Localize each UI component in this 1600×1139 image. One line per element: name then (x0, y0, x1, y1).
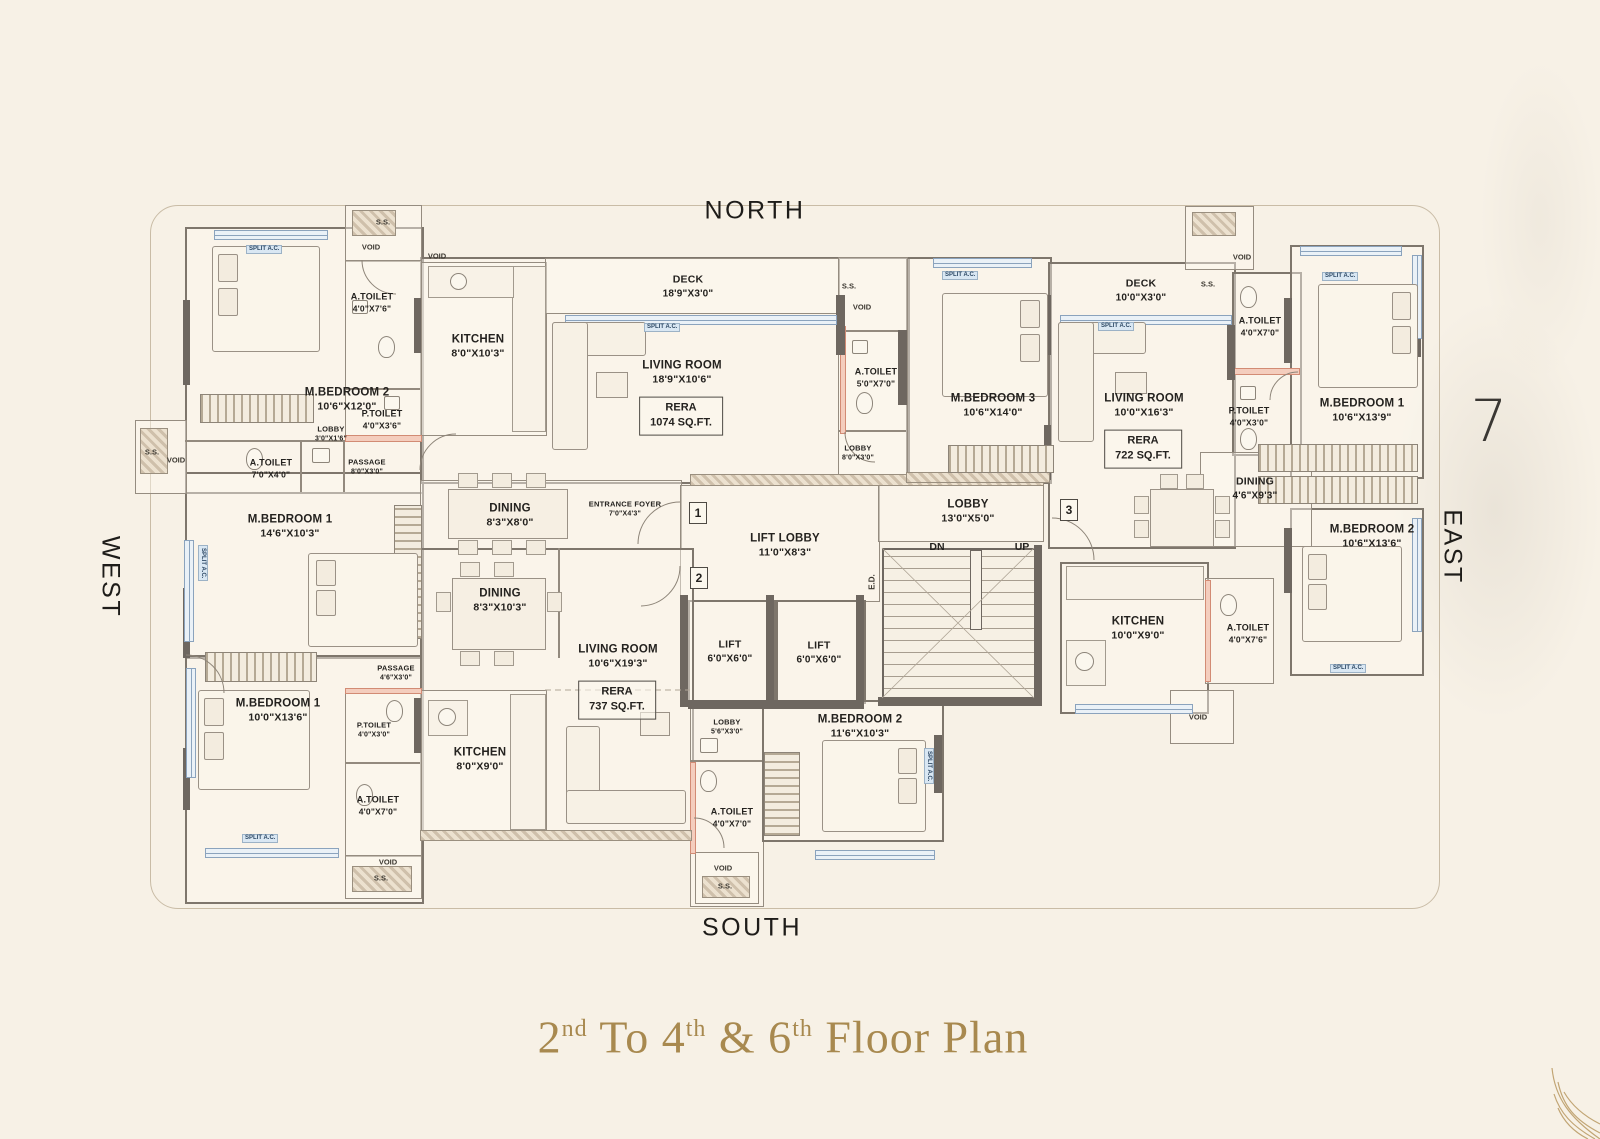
title-text: Floor Plan (813, 1012, 1028, 1063)
room-dims: 10'6"X13'6" (1330, 538, 1415, 552)
room-name: LOBBY (317, 425, 344, 434)
unit-number-badge: 1 (689, 502, 707, 524)
room-label: ENTRANCE FOYER7'0"X4'3" (589, 500, 661, 519)
floor-plan-canvas: M.BEDROOM 210'6"X12'0" A.TOILET4'0"X7'6"… (0, 0, 1600, 1139)
door-swing-arcs (0, 0, 1600, 1139)
room-dims: 4'0"X3'0" (357, 730, 391, 739)
room-name: LOBBY (844, 444, 871, 453)
room-name: DECK (1126, 278, 1157, 290)
room-label: M.BEDROOM 110'6"X13'9" (1320, 397, 1405, 426)
room-dims: 6'0"X6'0" (708, 652, 753, 665)
room-label: M.BEDROOM 114'6"X10'3" (248, 513, 333, 542)
room-dims: 10'0"X9'0" (1111, 630, 1164, 644)
room-label: DECK10'0"X3'0" (1116, 278, 1167, 305)
void-label: VOID (428, 252, 446, 261)
rera-label: RERA (1127, 435, 1158, 447)
room-dims: 18'9"X3'0" (663, 287, 714, 300)
room-label: A.TOILET4'0"X7'0" (1239, 316, 1281, 339)
room-dims: 4'0"X7'0" (1239, 327, 1281, 338)
void-label: VOID (379, 858, 397, 867)
room-name: A.TOILET (1239, 316, 1281, 326)
room-dims: 4'0"X3'0" (1229, 417, 1270, 428)
room-name: A.TOILET (250, 458, 292, 468)
electrical-duct-label: E.D. (868, 574, 877, 590)
title-text: To 4 (588, 1012, 686, 1063)
room-label: LOBBY8'0"X3'0" (842, 444, 874, 463)
void-label: VOID (853, 303, 871, 312)
room-dims: 10'0"X16'3" (1104, 407, 1184, 421)
room-name: P.TOILET (362, 409, 403, 419)
room-label: DINING8'3"X8'0" (486, 502, 533, 531)
floor-number: 7 (1471, 387, 1508, 455)
rera-label: RERA (601, 686, 632, 698)
room-label: LIVING ROOM18'9"X10'6" (642, 359, 722, 388)
room-name: LOBBY (947, 499, 988, 511)
room-name: ENTRANCE FOYER (589, 500, 661, 509)
room-dims: 7'0"X4'0" (250, 469, 292, 480)
room-name: A.TOILET (711, 807, 753, 817)
room-name: LIFT LOBBY (750, 533, 820, 545)
room-name: A.TOILET (1227, 623, 1269, 633)
room-dims: 7'0"X4'3" (589, 509, 661, 518)
room-name: LIFT (808, 640, 831, 652)
room-label: PASSAGE8'0"X3'0" (348, 458, 386, 477)
room-dims: 5'0"X7'0" (855, 378, 897, 389)
room-label: M.BEDROOM 211'6"X10'3" (818, 713, 903, 742)
room-label: P.TOILET4'0"X3'0" (1229, 406, 1270, 429)
split-ac-tag: SPLIT A.C. (1098, 322, 1134, 331)
room-name: A.TOILET (351, 292, 393, 302)
split-ac-tag: SPLIT A.C. (246, 245, 282, 254)
room-label: A.TOILET4'0"X7'0" (711, 807, 753, 830)
room-dims: 8'3"X8'0" (486, 517, 533, 531)
room-name: M.BEDROOM 2 (1330, 524, 1415, 536)
room-label: LOBBY13'0"X5'0" (941, 498, 994, 527)
floor-plan-page: { "compass":{"north":"NORTH","south":"SO… (0, 0, 1600, 1139)
rera-area-box: RERA737 SQ.FT. (578, 681, 656, 720)
stairs-dn-label: DN (929, 541, 944, 553)
room-name: DECK (673, 274, 704, 286)
rera-area-box: RERA722 SQ.FT. (1104, 430, 1182, 469)
room-dims: 8'3"X10'3" (473, 602, 526, 616)
room-label: M.BEDROOM 210'6"X13'6" (1330, 523, 1415, 552)
room-dims: 3'0"X1'6" (315, 434, 347, 443)
title-text: 2 (538, 1012, 562, 1063)
room-name: M.BEDROOM 3 (951, 393, 1036, 405)
room-label: P.TOILET4'0"X3'0" (357, 721, 391, 740)
room-dims: 10'0"X13'6" (236, 712, 321, 726)
room-name: DINING (479, 588, 520, 600)
room-name: M.BEDROOM 2 (818, 714, 903, 726)
room-dims: 4'6"X9'3" (1233, 489, 1278, 502)
room-name: A.TOILET (357, 795, 399, 805)
rera-label: RERA (665, 402, 696, 414)
rera-area-box: RERA1074 SQ.FT. (639, 397, 723, 436)
room-dims: 4'6"X3'0" (377, 673, 415, 682)
room-dims: 10'6"X13'9" (1320, 412, 1405, 426)
room-dims: 4'0"X7'0" (357, 806, 399, 817)
title-text: & 6 (706, 1012, 792, 1063)
rera-value: 722 SQ.FT. (1115, 450, 1171, 462)
unit-number-badge: 2 (690, 567, 708, 589)
room-name: P.TOILET (1229, 406, 1270, 416)
room-label: LIFT6'0"X6'0" (797, 640, 842, 667)
compass-north-label: NORTH (705, 197, 806, 226)
shaft-label: S.S. (374, 874, 388, 883)
page-title: 2nd To 4th & 6th Floor Plan (538, 1011, 1029, 1064)
title-sup: th (686, 1016, 707, 1042)
room-dims: 4'0"X7'0" (711, 818, 753, 829)
room-dims: 13'0"X5'0" (941, 513, 994, 527)
room-dims: 4'0"X7'6" (1227, 634, 1269, 645)
room-label: P.TOILET4'0"X3'6" (362, 409, 403, 432)
room-label: M.BEDROOM 310'6"X14'0" (951, 392, 1036, 421)
split-ac-tag: SPLIT A.C. (924, 748, 934, 784)
room-dims: 8'0"X3'0" (842, 453, 874, 462)
room-name: LOBBY (713, 718, 740, 727)
room-name: A.TOILET (855, 367, 897, 377)
room-name: KITCHEN (1112, 616, 1165, 628)
room-label: LIVING ROOM10'6"X19'3" (578, 643, 658, 672)
room-dims: 10'6"X19'3" (578, 658, 658, 672)
room-label: LIVING ROOM10'0"X16'3" (1104, 392, 1184, 421)
room-name: P.TOILET (357, 721, 391, 730)
room-name: PASSAGE (348, 458, 386, 467)
split-ac-tag: SPLIT A.C. (942, 271, 978, 280)
split-ac-tag: SPLIT A.C. (1330, 664, 1366, 673)
room-name: LIVING ROOM (1104, 393, 1184, 405)
room-label: LIFT LOBBY11'0"X8'3" (750, 532, 820, 561)
title-sup: nd (562, 1016, 588, 1042)
room-label: LIFT6'0"X6'0" (708, 639, 753, 666)
room-dims: 8'0"X10'3" (451, 348, 504, 362)
room-name: LIVING ROOM (642, 360, 722, 372)
split-ac-tag: SPLIT A.C. (198, 545, 208, 581)
room-name: LIVING ROOM (578, 644, 658, 656)
room-label: A.TOILET5'0"X7'0" (855, 367, 897, 390)
split-ac-tag: SPLIT A.C. (242, 834, 278, 843)
shaft-label: S.S. (145, 448, 159, 457)
room-dims: 4'0"X3'6" (362, 420, 403, 431)
room-dims: 11'6"X10'3" (818, 728, 903, 742)
room-dims: 4'0"X7'6" (351, 303, 393, 314)
room-label: DINING8'3"X10'3" (473, 587, 526, 616)
room-label: KITCHEN8'0"X10'3" (451, 333, 504, 362)
room-dims: 11'0"X8'3" (750, 547, 820, 561)
split-ac-tag: SPLIT A.C. (644, 323, 680, 332)
room-name: M.BEDROOM 1 (248, 514, 333, 526)
room-name: DINING (489, 503, 530, 515)
room-name: LIFT (719, 639, 742, 651)
room-dims: 14'6"X10'3" (248, 528, 333, 542)
room-name: M.BEDROOM 1 (1320, 398, 1405, 410)
room-dims: 5'6"X3'0" (711, 727, 743, 736)
room-name: M.BEDROOM 1 (236, 698, 321, 710)
room-label: PASSAGE4'6"X3'0" (377, 664, 415, 683)
room-label: A.TOILET4'0"X7'6" (1227, 623, 1269, 646)
compass-south-label: SOUTH (702, 914, 802, 943)
room-name: KITCHEN (452, 334, 505, 346)
room-dims: 8'0"X9'0" (454, 761, 507, 775)
rera-value: 1074 SQ.FT. (650, 417, 712, 429)
void-label: VOID (714, 864, 732, 873)
compass-west-label: WEST (96, 536, 125, 618)
room-label: DECK18'9"X3'0" (663, 274, 714, 301)
room-name: DINING (1236, 476, 1274, 488)
room-dims: 10'6"X14'0" (951, 407, 1036, 421)
room-label: KITCHEN8'0"X9'0" (454, 746, 507, 775)
shaft-label: S.S. (1201, 280, 1215, 289)
rera-value: 737 SQ.FT. (589, 701, 645, 713)
shaft-label: S.S. (376, 218, 390, 227)
room-label: DINING4'6"X9'3" (1233, 476, 1278, 503)
room-label: M.BEDROOM 110'0"X13'6" (236, 697, 321, 726)
room-label: A.TOILET4'0"X7'6" (351, 292, 393, 315)
room-dims: 18'9"X10'6" (642, 374, 722, 388)
void-label: VOID (167, 456, 185, 465)
shaft-label: S.S. (718, 882, 732, 891)
title-sup: th (792, 1016, 813, 1042)
split-ac-tag: SPLIT A.C. (1322, 272, 1358, 281)
room-name: M.BEDROOM 2 (305, 387, 390, 399)
void-label: VOID (1233, 253, 1251, 262)
void-label: VOID (1189, 713, 1207, 722)
stairs-up-label: UP (1015, 541, 1030, 553)
leaf-decoration (1500, 1058, 1600, 1139)
room-label: LOBBY3'0"X1'6" (315, 425, 347, 444)
room-dims: 6'0"X6'0" (797, 653, 842, 666)
void-label: VOID (362, 243, 380, 252)
shaft-label: S.S. (842, 282, 856, 291)
room-name: PASSAGE (377, 664, 415, 673)
compass-east-label: EAST (1438, 509, 1467, 584)
room-name: KITCHEN (454, 747, 507, 759)
room-dims: 8'0"X3'0" (348, 467, 386, 476)
room-label: KITCHEN10'0"X9'0" (1111, 615, 1164, 644)
room-dims: 10'0"X3'0" (1116, 291, 1167, 304)
room-label: A.TOILET7'0"X4'0" (250, 458, 292, 481)
unit-number-badge: 3 (1060, 499, 1078, 521)
room-label: LOBBY5'6"X3'0" (711, 718, 743, 737)
room-label: A.TOILET4'0"X7'0" (357, 795, 399, 818)
